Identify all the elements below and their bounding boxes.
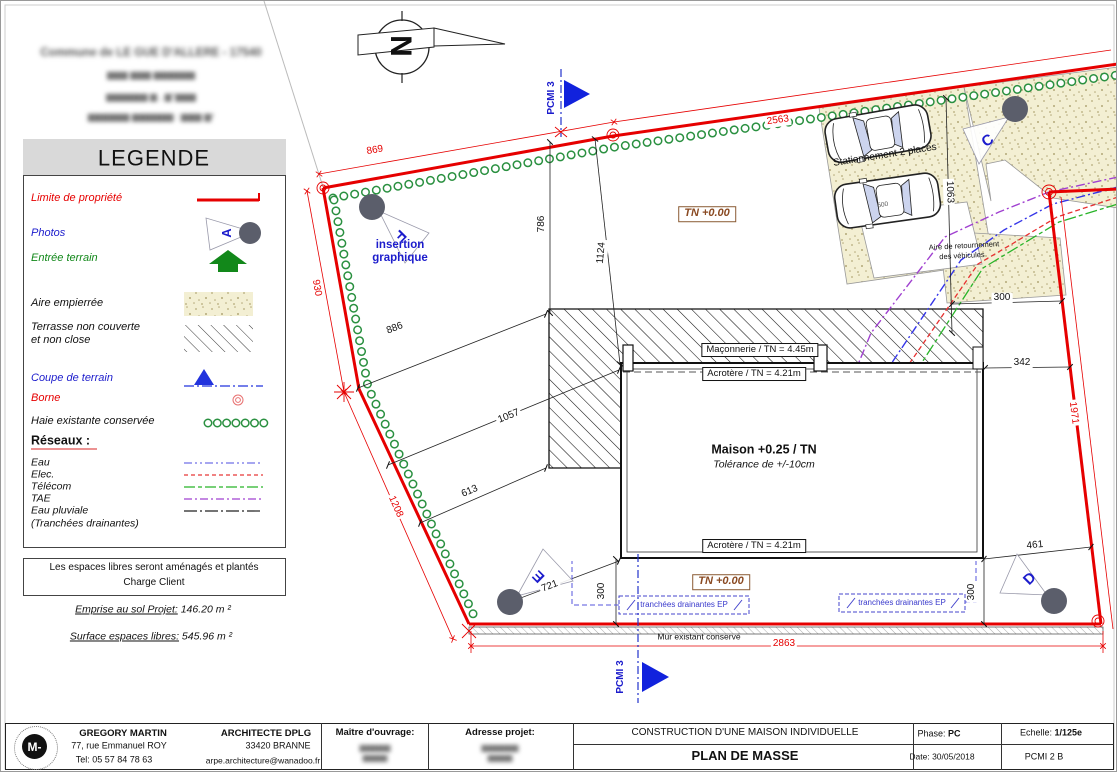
dim-2863: 2863 xyxy=(771,639,797,650)
maconnerie-label: Maçonnerie / TN = 4.45m xyxy=(701,343,818,357)
parcel-note-line2: ▆▆▆ ▆▆▆ ▆▆▆▆▆▆ xyxy=(107,70,195,79)
phase-cell: Phase: PC xyxy=(917,729,960,738)
north-letter: N xyxy=(384,35,416,57)
acrotere-bottom-label: Acrotère / TN = 4.21m xyxy=(702,539,806,553)
architect-name: GREGORY MARTIN xyxy=(79,729,167,739)
house-tolerance-label: Tolérance de +/-10cm xyxy=(713,459,814,470)
title-block-hdivider xyxy=(573,744,1114,745)
surface-label: Surface espaces libres: xyxy=(70,630,179,642)
legend-borne: Borne xyxy=(31,393,60,405)
dim-721: 721 xyxy=(538,578,561,595)
maitre-ouvrage-redacted-1: ▆▆▆▆▆ xyxy=(360,744,391,752)
legend-reseaux: Réseaux : xyxy=(31,434,90,447)
parcel-note-line1: Commune de LE GUE D'ALLERE - 17540 xyxy=(40,47,261,59)
echelle-cell: Echelle: 1/125e xyxy=(1020,728,1082,737)
dim-300-left: 300 xyxy=(597,581,608,602)
title-block-divider xyxy=(913,723,914,770)
legend-coupe: Coupe de terrain xyxy=(31,373,113,385)
parking-label: Stationnement 2 places xyxy=(833,143,938,170)
date-cell: Date: 30/05/2018 xyxy=(909,753,974,762)
phase-value: PC xyxy=(948,728,961,738)
dim-1971: 1971 xyxy=(1066,399,1080,426)
dim-1208: 1208 xyxy=(385,493,405,521)
architect-tel: Tel: 05 57 84 78 63 xyxy=(76,755,153,764)
emprise-line: Emprise au sol Projet: 146.20 m ² xyxy=(75,604,231,615)
plan-de-masse-sheet: Commune de LE GUE D'ALLERE - 17540 ▆▆▆ ▆… xyxy=(0,0,1117,772)
sheet-title: PLAN DE MASSE xyxy=(692,749,799,763)
eau-line xyxy=(889,187,1117,367)
dim-886: 886 xyxy=(383,320,406,337)
gravel-area xyxy=(819,67,1117,303)
dim-342: 342 xyxy=(1012,358,1033,369)
ref-cell: PCMI 2 B xyxy=(1025,752,1064,761)
architect-address: 77, rue Emmanuel ROY xyxy=(71,741,167,750)
echelle-value: 1/125e xyxy=(1055,727,1083,737)
title-block-divider xyxy=(1001,723,1002,770)
dim-1063: 1063 xyxy=(943,179,954,206)
pcmi-flag-bottom xyxy=(642,662,669,692)
parcel-note-line3: ▆▆▆▆▆▆ ▆ , ▆°▆▆▆ xyxy=(106,92,196,101)
photo-marker-d: D xyxy=(1021,570,1040,589)
architect-logo: M- xyxy=(14,726,58,770)
dim-2563: 2563 xyxy=(764,114,791,128)
existing-wall-label: Mur existant conservé xyxy=(657,633,740,642)
legend-haie: Haie existante conservée xyxy=(31,416,155,428)
dim-300-right-bottom: 300 xyxy=(967,582,978,603)
title-block-divider xyxy=(321,723,322,770)
house-label: Maison +0.25 / TN xyxy=(711,443,816,456)
legend-title: LEGENDE xyxy=(98,146,210,169)
acrotere-top-label: Acrotère / TN = 4.21m xyxy=(702,367,806,381)
note-line1: Les espaces libres seront aménagés et pl… xyxy=(49,563,258,574)
pcmi-bottom-label: PCMI 3 xyxy=(616,660,627,693)
dim-1057: 1057 xyxy=(495,407,523,427)
legend-limite: Limite de propriété xyxy=(31,193,122,205)
surface-line: Surface espaces libres: 545.96 m ² xyxy=(70,631,232,642)
architect-email: arpe.architecture@wanadoo.fr xyxy=(206,757,320,766)
maitre-ouvrage-redacted-2: ▆▆▆▆ xyxy=(363,754,388,762)
adresse-projet-label: Adresse projet: xyxy=(465,728,535,738)
surface-value: 545.96 m ² xyxy=(179,630,232,642)
legend-terrasse-1: Terrasse non couverte xyxy=(31,322,140,334)
parking-dim: 500 xyxy=(877,202,889,210)
parcel-note-line4: ▆▆▆▆▆▆ ▆▆▆▆▆▆ : ▆▆▆ ▆² xyxy=(88,112,214,121)
dim-869: 869 xyxy=(364,144,386,158)
trench-left-label: tranchées drainantes EP xyxy=(640,601,728,609)
phase-label: Phase: xyxy=(917,728,948,738)
dim-930: 930 xyxy=(309,277,323,299)
legend-aire: Aire empierrée xyxy=(31,298,103,310)
architect-title: ARCHITECTE DPLG xyxy=(221,729,311,739)
legend-photo-marker-letter: A xyxy=(220,228,234,237)
note-line2: Charge Client xyxy=(123,578,184,589)
adresse-projet-redacted-2: ▆▆▆▆ xyxy=(488,754,513,762)
legend-entree: Entrée terrain xyxy=(31,253,98,265)
post xyxy=(623,345,633,371)
legend-elec: Elec. xyxy=(31,469,54,480)
legend-terrasse-2: et non close xyxy=(31,335,90,347)
legend-tae: TAE xyxy=(31,493,51,504)
north-arrow xyxy=(358,11,505,83)
tae-line xyxy=(857,177,1117,367)
insertion-label-2: graphique xyxy=(372,252,428,264)
maitre-ouvrage-label: Maître d'ouvrage: xyxy=(336,728,415,738)
emprise-label: Emprise au sol Projet: xyxy=(75,603,178,615)
date-label: Date: xyxy=(909,752,932,762)
trench-right-label: tranchées drainantes EP xyxy=(858,599,946,607)
date-value: 30/05/2018 xyxy=(932,752,975,762)
existing-wall xyxy=(469,627,1103,634)
pcmi-flag-top xyxy=(564,80,590,108)
legend-telecom: Télécom xyxy=(31,481,71,492)
legend-pluviale-1: Eau pluviale xyxy=(31,505,88,516)
photo-marker-c: C xyxy=(979,131,997,150)
dim-786: 786 xyxy=(537,214,548,235)
legend-photos: Photos xyxy=(31,228,65,240)
title-block-divider xyxy=(428,723,429,770)
echelle-label: Echelle: xyxy=(1020,727,1055,737)
architect-logo-letter: M- xyxy=(22,734,47,759)
architect-city: 33420 BRANNE xyxy=(245,741,310,750)
tn-level-top: TN +0.00 xyxy=(678,206,736,222)
title-block-divider xyxy=(573,723,574,770)
bornes xyxy=(317,127,1104,638)
pcmi-top-label: PCMI 3 xyxy=(547,81,558,114)
adresse-projet-redacted-1: ▆▆▆▆▆▆ xyxy=(482,744,519,752)
legend-pluviale-2: (Tranchées drainantes) xyxy=(31,518,139,529)
telecom-line xyxy=(919,204,1117,367)
project-title: CONSTRUCTION D'UNE MAISON INDIVIDUELLE xyxy=(632,728,859,739)
elec-line xyxy=(907,197,1117,367)
utility-networks xyxy=(857,177,1117,367)
dim-613: 613 xyxy=(458,483,481,501)
turning-area-label-2: des véhicules xyxy=(939,251,985,261)
tn-level-bottom: TN +0.00 xyxy=(692,574,750,590)
emprise-value: 146.20 m ² xyxy=(178,603,231,615)
dim-1124: 1124 xyxy=(596,240,609,266)
dim-461: 461 xyxy=(1024,540,1046,553)
dim-300-right-top: 300 xyxy=(992,293,1013,304)
legend-eau: Eau xyxy=(31,457,50,468)
driveway-notch xyxy=(859,202,982,278)
post xyxy=(973,347,983,369)
